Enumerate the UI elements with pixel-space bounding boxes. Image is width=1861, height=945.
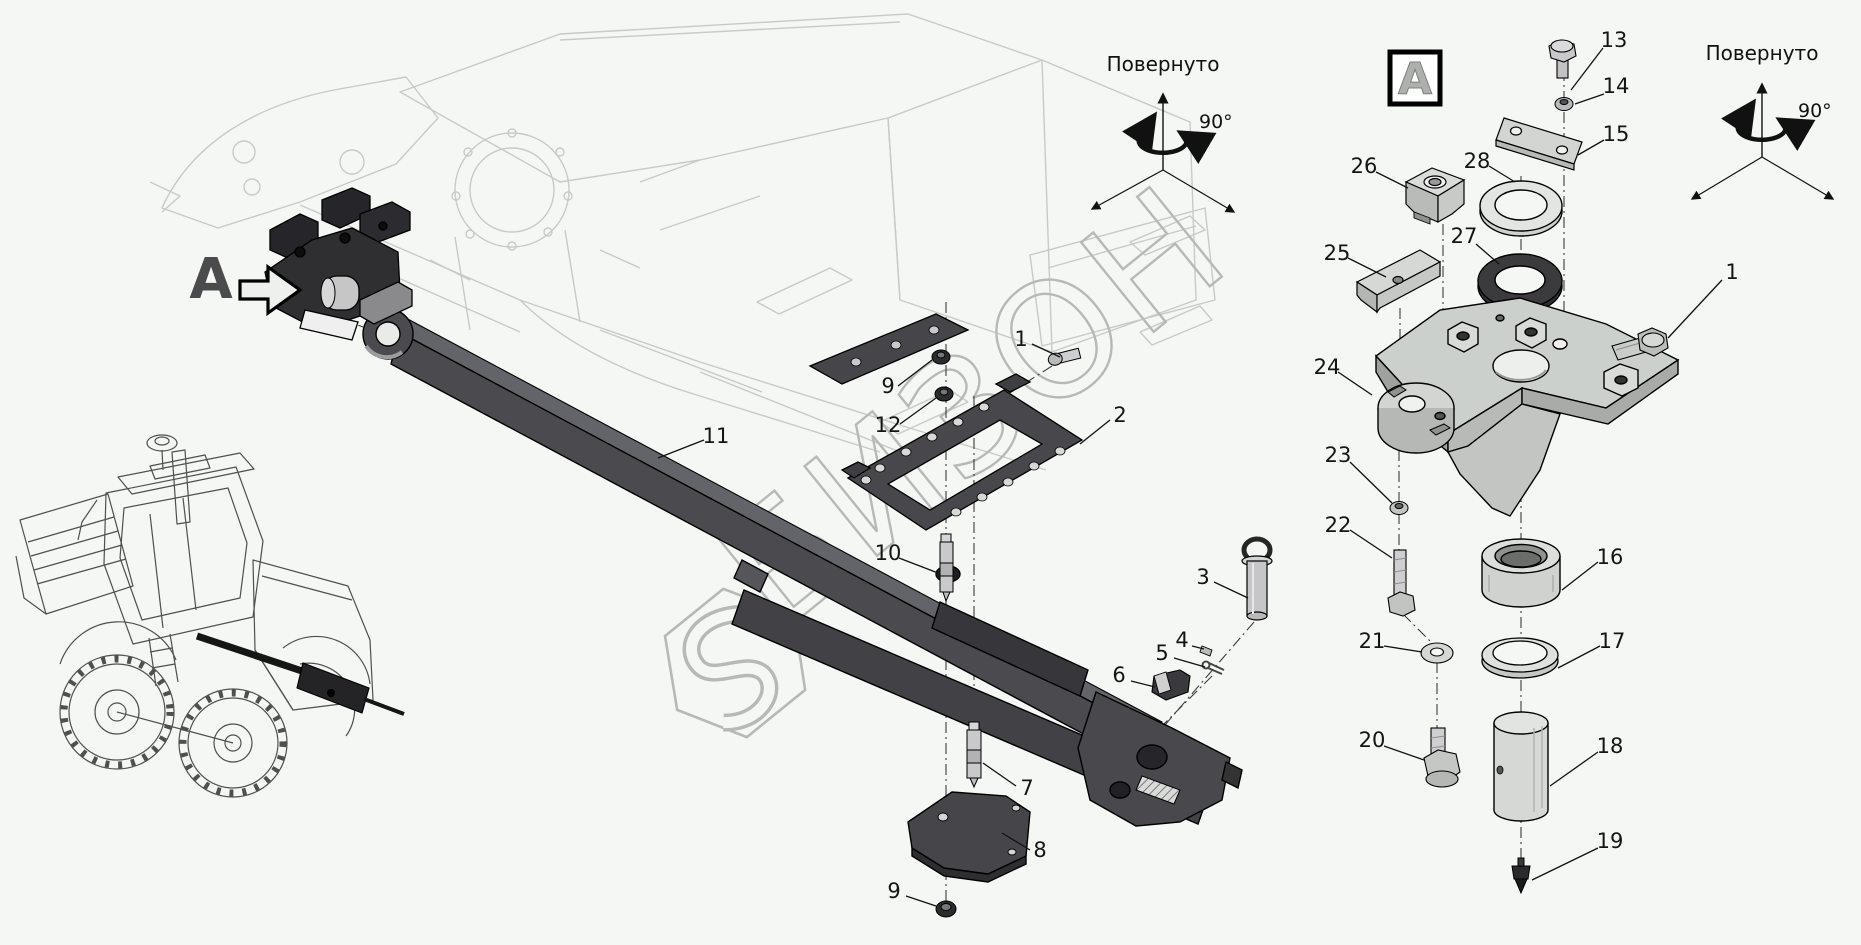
- callout-26: 26: [1351, 154, 1378, 178]
- callout-22: 22: [1325, 513, 1352, 537]
- detail-a-letter: A: [189, 247, 233, 312]
- part-14-nut: [1555, 98, 1573, 111]
- callout-25: 25: [1324, 241, 1351, 265]
- exploded-parts-diagram: БИЗОН: [0, 0, 1861, 945]
- callout-23: 23: [1325, 443, 1352, 467]
- callout-1-right: 1: [1725, 260, 1738, 284]
- callout-28: 28: [1464, 149, 1491, 173]
- rotation-title-right: Повернуто: [1706, 41, 1819, 65]
- part-16-bushing: [1482, 539, 1560, 607]
- part-10-pin: [940, 534, 953, 601]
- part-9-nut-upper: [932, 350, 950, 364]
- detail-a-box: A: [1390, 52, 1440, 105]
- part-12-nut: [935, 387, 953, 401]
- callout-18: 18: [1597, 734, 1624, 758]
- callout-21: 21: [1359, 629, 1386, 653]
- callout-27: 27: [1451, 224, 1478, 248]
- callout-13: 13: [1601, 28, 1628, 52]
- part-28-washer: [1480, 181, 1562, 236]
- part-7-pin: [967, 722, 981, 787]
- callout-24: 24: [1314, 355, 1341, 379]
- callout-2: 2: [1113, 403, 1126, 427]
- callout-1: 1: [1014, 327, 1027, 351]
- callout-17: 17: [1599, 629, 1626, 653]
- callout-3: 3: [1196, 565, 1209, 589]
- part-21-washer: [1421, 643, 1453, 663]
- callout-14: 14: [1603, 74, 1630, 98]
- part-9-nut-lower: [936, 901, 956, 917]
- callout-16: 16: [1597, 545, 1624, 569]
- callout-12: 12: [875, 413, 902, 437]
- part-17-ring: [1482, 638, 1558, 678]
- callout-5: 5: [1155, 641, 1168, 665]
- callout-10: 10: [875, 541, 902, 565]
- part-18-spacer-cylinder: [1494, 712, 1548, 821]
- callout-20: 20: [1359, 728, 1386, 752]
- callout-11: 11: [703, 424, 730, 448]
- callout-4: 4: [1175, 628, 1188, 652]
- callout-7: 7: [1020, 776, 1033, 800]
- detail-a-box-letter: A: [1398, 54, 1432, 105]
- part-23-nut: [1390, 502, 1408, 515]
- callout-9-upper: 9: [881, 374, 894, 398]
- callout-9-lower: 9: [887, 879, 900, 903]
- rotation-title-center: Повернуто: [1107, 52, 1220, 76]
- callout-15: 15: [1603, 122, 1630, 146]
- rotation-angle-right: 90°: [1798, 100, 1832, 122]
- callout-6: 6: [1112, 663, 1125, 687]
- rotation-angle-center: 90°: [1199, 111, 1233, 133]
- parts-diagram-page: БИЗОН: [0, 0, 1861, 945]
- callout-8: 8: [1033, 838, 1046, 862]
- callout-19: 19: [1597, 829, 1624, 853]
